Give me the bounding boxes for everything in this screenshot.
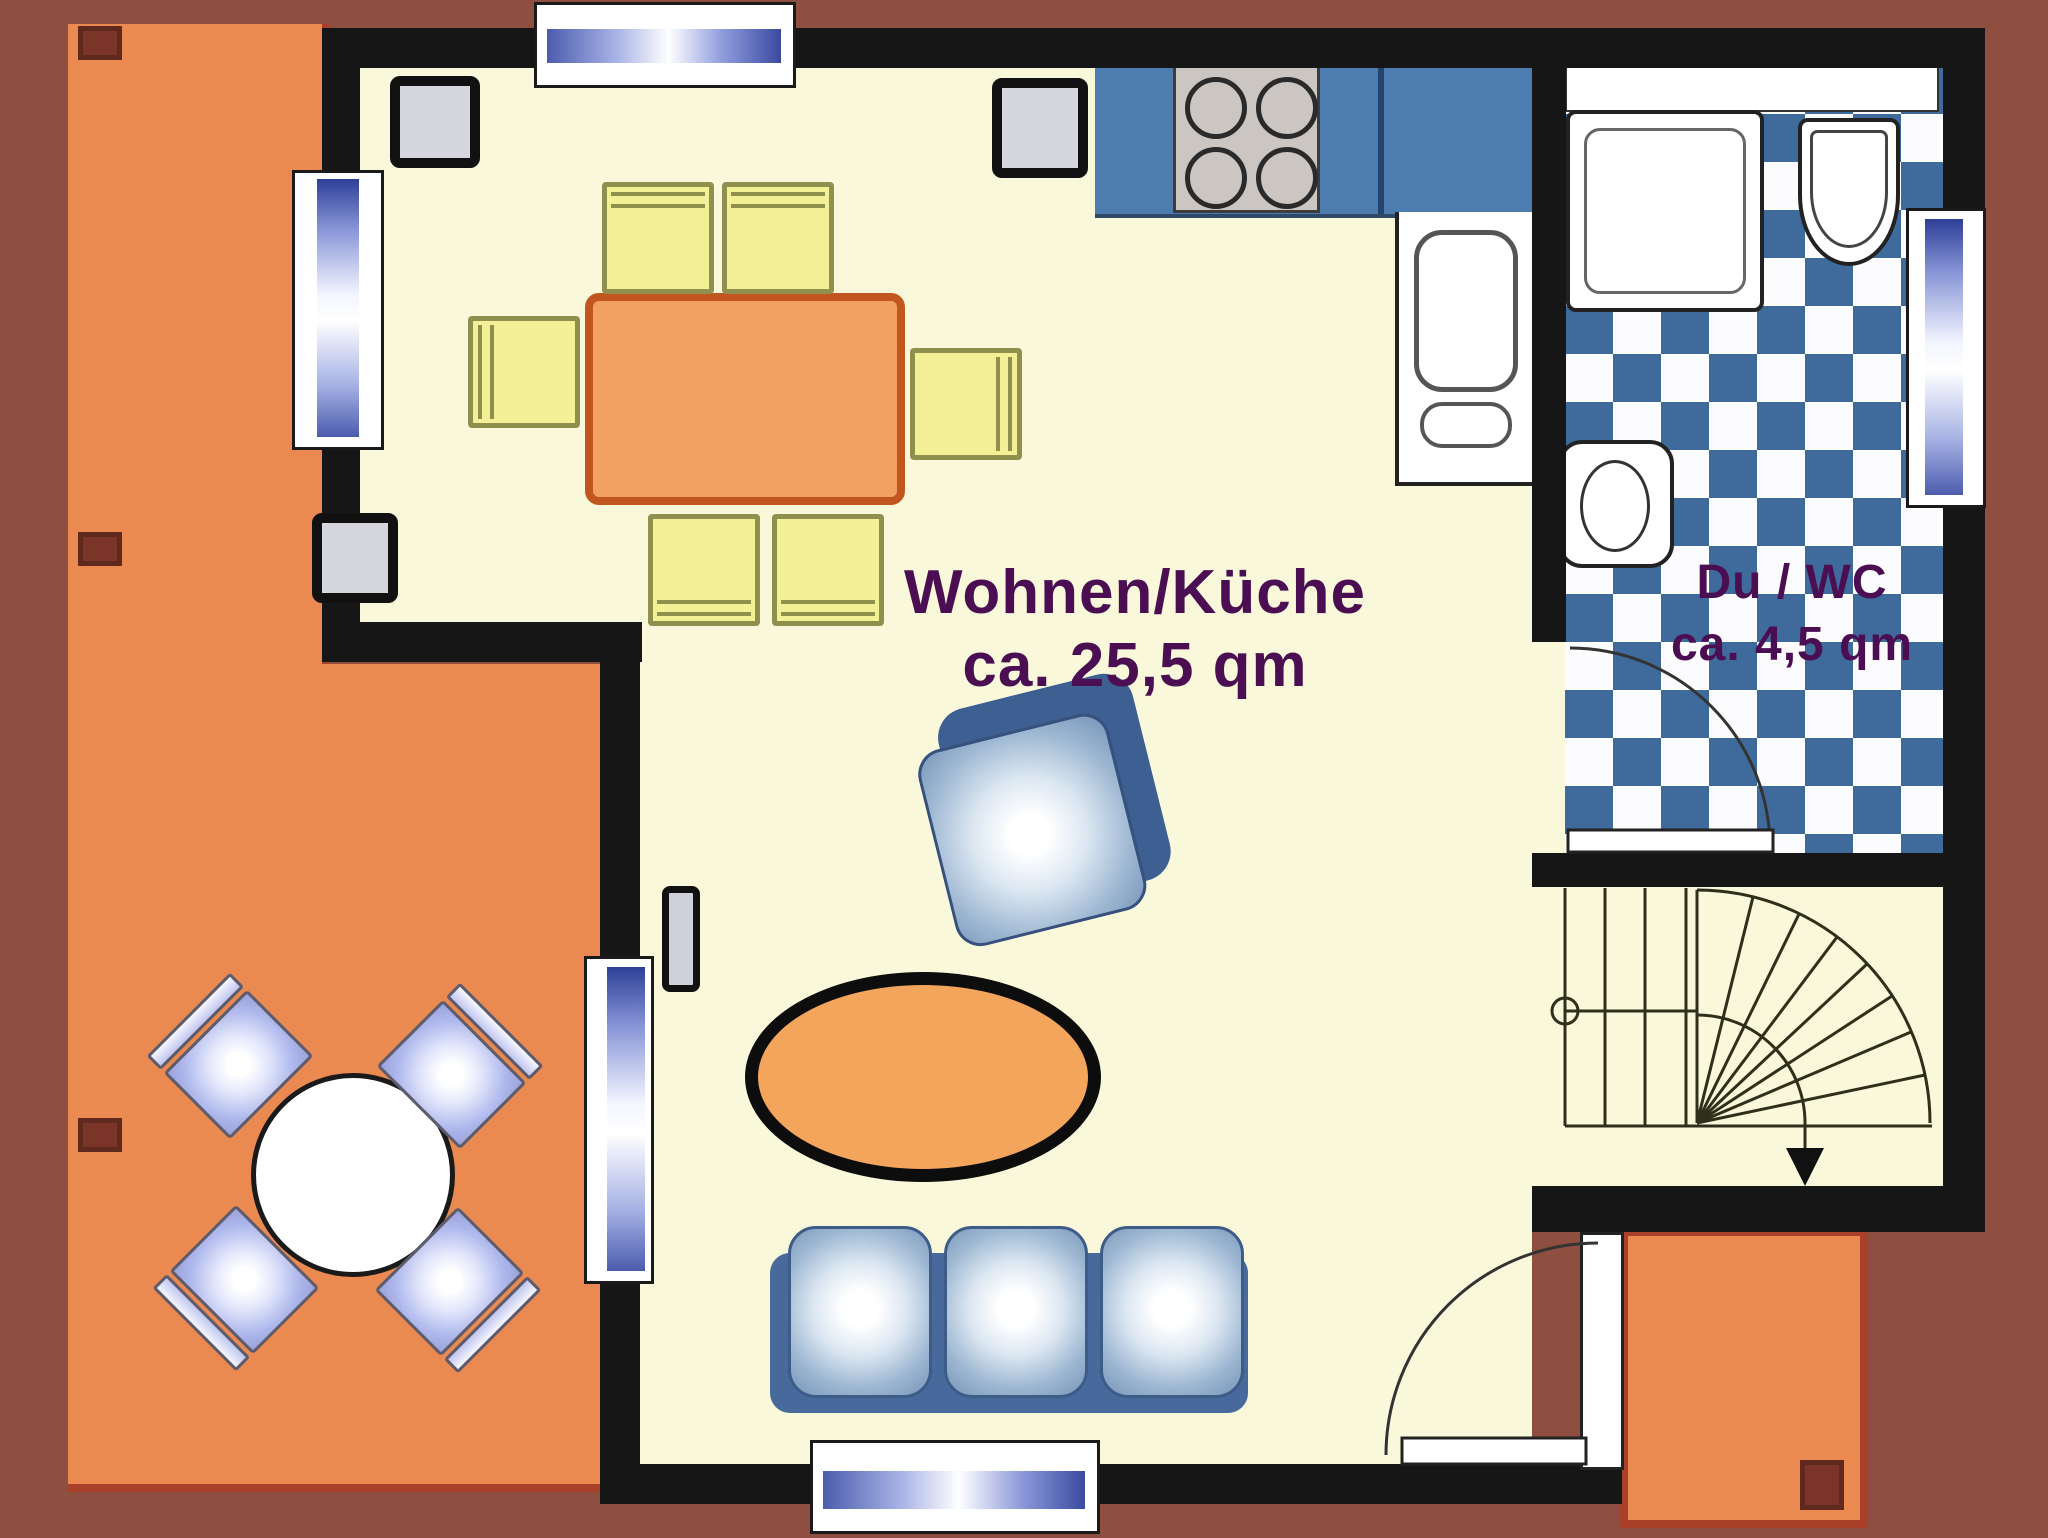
column-post <box>312 513 398 603</box>
terrace-post <box>78 532 122 566</box>
wall-south-stub <box>1582 1464 1622 1504</box>
kitchen-counter-divider <box>1378 62 1384 214</box>
toilet-bowl <box>1580 460 1650 552</box>
chair-backrest <box>731 192 825 208</box>
window-glass <box>607 967 645 1271</box>
window-west-upper <box>292 170 384 450</box>
terrace-post <box>78 1118 122 1152</box>
shower-wc-area: ca. 4,5 qm <box>1671 614 1913 676</box>
room-label-shower-wc: Du / WC ca. 4,5 qm <box>1671 552 1913 676</box>
terrace-post <box>78 26 122 60</box>
chair-backrest <box>657 600 751 616</box>
window-north <box>534 2 796 88</box>
stove-burner <box>1185 77 1247 139</box>
room-label-living-kitchen: Wohnen/Küche ca. 25,5 qm <box>904 556 1366 702</box>
shower-basin <box>1584 128 1746 294</box>
dining-chair <box>772 514 884 626</box>
floor-plan: Wohnen/Küche ca. 25,5 qm Du / WC ca. 4,5… <box>0 0 2048 1538</box>
stove-burner <box>1256 147 1318 209</box>
dining-chair <box>602 182 714 294</box>
chair-backrest <box>611 192 705 208</box>
dining-chair <box>648 514 760 626</box>
window-bath-east <box>1906 208 1986 508</box>
living-kitchen-area: ca. 25,5 qm <box>904 629 1366 702</box>
chair-backrest <box>781 600 875 616</box>
heater <box>662 886 700 992</box>
stove-burner <box>1256 77 1318 139</box>
sink-drainer <box>1420 402 1512 448</box>
toilet <box>1558 440 1674 568</box>
washbasin <box>1798 118 1900 266</box>
chair-backrest <box>478 325 494 419</box>
shower-tray <box>1566 110 1764 312</box>
washbasin-bowl <box>1810 130 1888 248</box>
wall-stair-south <box>1532 1186 1985 1232</box>
sofa-cushion <box>788 1226 932 1398</box>
sofa-cushion <box>1100 1226 1244 1398</box>
window-south <box>810 1440 1100 1534</box>
dining-chair <box>722 182 834 294</box>
wall-bath-south <box>1532 853 1985 887</box>
wall-bath-west <box>1532 28 1566 642</box>
wall-jog <box>322 622 642 662</box>
living-kitchen-name: Wohnen/Küche <box>904 556 1366 629</box>
shower-wc-name: Du / WC <box>1671 552 1913 614</box>
window-glass <box>1925 219 1963 495</box>
stove-burner <box>1185 147 1247 209</box>
sofa-cushion <box>944 1226 1088 1398</box>
column-post <box>390 76 480 168</box>
kitchen-sink <box>1414 230 1518 392</box>
entry-doorway <box>1580 1232 1624 1470</box>
oval-coffee-table <box>745 972 1101 1182</box>
bathroom-shelf <box>1565 66 1939 112</box>
window-glass <box>547 29 781 63</box>
window-glass <box>823 1471 1085 1509</box>
terrace-left <box>68 24 330 664</box>
window-west-lower <box>584 956 654 1284</box>
column-post <box>992 78 1088 178</box>
chair-backrest <box>996 357 1012 451</box>
window-glass <box>317 179 359 437</box>
sink-cabinet <box>1395 212 1536 486</box>
dining-table <box>585 293 905 505</box>
dining-chair <box>910 348 1022 460</box>
dining-chair <box>468 316 580 428</box>
stove <box>1173 64 1320 213</box>
porch-post <box>1800 1460 1844 1510</box>
